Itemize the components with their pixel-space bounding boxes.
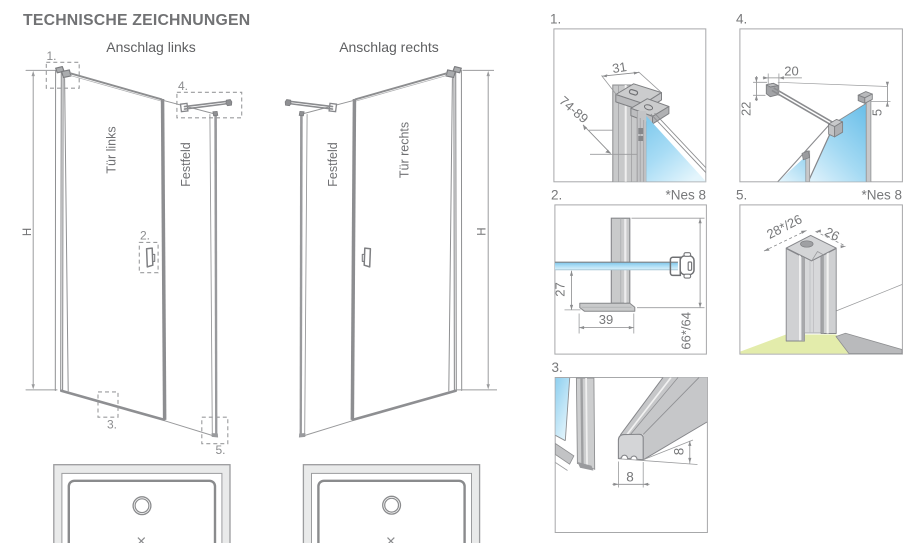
svg-text:Tür links: Tür links: [105, 126, 119, 173]
svg-text:1.: 1.: [47, 49, 57, 63]
svg-text:22: 22: [739, 102, 754, 116]
svg-text:3.: 3.: [107, 418, 117, 432]
svg-text:1.: 1.: [550, 12, 561, 27]
svg-text:*Nes 8: *Nes 8: [861, 188, 902, 203]
svg-text:39: 39: [599, 312, 613, 327]
svg-text:5: 5: [870, 109, 885, 116]
svg-text:5.: 5.: [216, 443, 226, 457]
svg-text:Anschlag rechts: Anschlag rechts: [339, 39, 439, 55]
svg-text:Festfeld: Festfeld: [179, 142, 193, 187]
svg-text:3.: 3.: [552, 360, 563, 375]
svg-text:Festfeld: Festfeld: [326, 142, 340, 187]
svg-text:4.: 4.: [736, 12, 747, 27]
svg-text:Anschlag links: Anschlag links: [106, 39, 196, 55]
svg-text:TECHNISCHE ZEICHNUNGEN: TECHNISCHE ZEICHNUNGEN: [23, 12, 250, 29]
svg-text:*Nes 8: *Nes 8: [665, 188, 706, 203]
svg-text:5.: 5.: [736, 188, 747, 203]
svg-text:20: 20: [784, 64, 798, 79]
svg-text:4.: 4.: [178, 79, 188, 93]
svg-text:66*/64: 66*/64: [679, 312, 694, 350]
svg-text:Tür rechts: Tür rechts: [398, 122, 412, 178]
svg-text:H: H: [22, 228, 34, 236]
svg-text:8: 8: [672, 448, 687, 456]
svg-text:2.: 2.: [140, 229, 150, 243]
svg-text:H: H: [477, 227, 489, 235]
svg-text:8: 8: [626, 470, 634, 485]
svg-text:2.: 2.: [551, 188, 562, 203]
